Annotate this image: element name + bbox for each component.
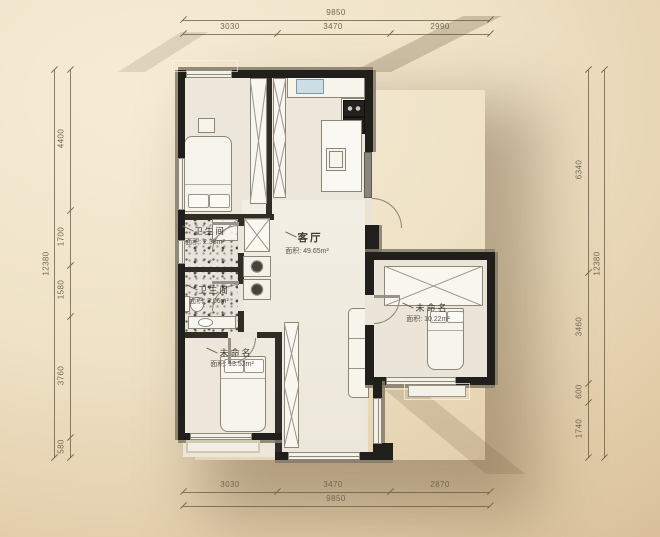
dim-line	[604, 70, 605, 458]
room-area-bathroom-lower: 面积: 3.06m²	[189, 296, 229, 306]
dim-line	[183, 20, 490, 21]
floor-plan-canvas: 客厅 面积: 49.65m² 卫生间 面积: 2.38m² 卫生间 面积: 3.…	[0, 0, 660, 537]
dim-line	[183, 506, 490, 507]
dim-left-seg2: 1580	[57, 255, 66, 325]
dryer-icon	[243, 279, 271, 300]
window-bathroom-left	[178, 240, 185, 264]
room-area-living: 面积: 49.65m²	[285, 246, 329, 256]
door-gap-bedroomR	[365, 295, 374, 325]
dim-top-total: 9850	[301, 8, 371, 17]
dim-left-seg3: 3760	[57, 341, 66, 411]
wall-bedroomR-top	[365, 252, 495, 260]
bay-window-bedroomBL	[186, 440, 260, 453]
dim-bottom-seg2: 2870	[405, 480, 475, 489]
kitchen-sink-icon	[296, 79, 324, 94]
window-living-right	[373, 398, 382, 444]
room-label-bedroomR: 未命名	[415, 301, 448, 314]
dim-right-seg1: 3460	[575, 292, 584, 362]
wall-bedroomR-right	[487, 252, 495, 385]
blanket-line	[428, 330, 463, 331]
dim-left-seg0: 4400	[57, 104, 66, 174]
room-area-bedroomR: 面积: 10.22m²	[406, 314, 450, 324]
pillow-icon	[188, 194, 209, 208]
dim-tick	[487, 502, 494, 509]
dim-right-seg3: 1740	[575, 394, 584, 464]
washer-icon	[243, 256, 271, 277]
dim-bottom-seg0: 3030	[195, 480, 265, 489]
dim-top-seg0: 3030	[195, 22, 265, 31]
dim-tick	[601, 454, 608, 461]
wall-bedroomBL-right	[275, 332, 282, 460]
room-label-bedroomBL: 未命名	[219, 346, 252, 359]
room-area-bedroomBL: 面积: 13.52m²	[210, 359, 254, 369]
dim-line	[54, 70, 55, 458]
dim-tick	[585, 454, 592, 461]
wall-corner-patch	[378, 443, 393, 460]
tall-cabinet-icon	[273, 78, 286, 198]
dim-top-seg2: 2990	[405, 22, 475, 31]
pillow-icon	[209, 194, 230, 208]
dim-top-seg1: 3470	[298, 22, 368, 31]
dim-right-seg0: 6340	[575, 135, 584, 205]
island-sink-icon	[326, 148, 346, 171]
window-bedroomTL-left	[178, 158, 185, 210]
dim-left-seg4: 580	[57, 412, 66, 482]
dim-tick	[487, 30, 494, 37]
blanket-line	[221, 378, 265, 379]
dim-bottom-seg1: 3470	[298, 480, 368, 489]
wardrobe-icon	[250, 78, 267, 204]
hall-wardrobe-icon	[284, 322, 299, 448]
dim-right-total: 12380	[593, 229, 602, 299]
nightstand-icon	[198, 118, 215, 133]
vanity-sink-icon	[198, 318, 213, 327]
wall-kitchen-right	[365, 70, 373, 152]
dim-bottom-total: 9850	[301, 494, 371, 503]
bay-outline-topleft	[172, 60, 238, 72]
window-bedroomBL-bottom	[190, 433, 252, 440]
window-living-bottom	[288, 452, 360, 460]
dim-line	[183, 492, 490, 493]
entry-door-icon	[364, 152, 372, 198]
room-label-bathroom-upper: 卫生间	[194, 225, 226, 237]
blanket-line	[185, 184, 231, 185]
wall-bathrooms-divider	[178, 267, 242, 272]
dim-left-total: 12380	[42, 229, 51, 299]
dim-tick	[67, 454, 74, 461]
stove-burner-icon	[343, 100, 365, 117]
dim-line	[183, 34, 490, 35]
bay-window-bedroomR	[408, 385, 466, 397]
hall-cabinet-icon	[244, 218, 270, 252]
room-area-bathroom-upper: 面积: 2.38m²	[185, 237, 225, 247]
room-label-living: 客厅	[298, 230, 323, 245]
dim-tick	[487, 488, 494, 495]
room-label-bathroom-lower: 卫生间	[198, 284, 230, 296]
